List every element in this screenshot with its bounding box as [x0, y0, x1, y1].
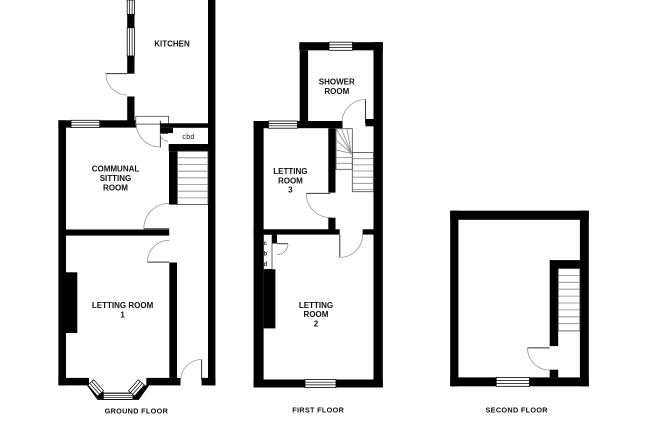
svg-text:FIRST FLOOR: FIRST FLOOR	[292, 406, 344, 415]
svg-text:ROOM: ROOM	[324, 87, 349, 96]
svg-text:LETTING: LETTING	[273, 167, 307, 176]
svg-text:ROOM: ROOM	[304, 310, 329, 319]
svg-text:d: d	[263, 262, 267, 268]
svg-text:SITTING: SITTING	[100, 174, 132, 183]
svg-text:GROUND FLOOR: GROUND FLOOR	[105, 406, 169, 415]
svg-text:SHOWER: SHOWER	[319, 78, 355, 87]
svg-text:cbd: cbd	[182, 134, 194, 141]
svg-text:b: b	[263, 252, 267, 258]
svg-text:ROOM: ROOM	[103, 184, 128, 193]
svg-text:LETTING ROOM: LETTING ROOM	[92, 301, 154, 310]
svg-text:LETTING: LETTING	[299, 301, 333, 310]
svg-text:KITCHEN: KITCHEN	[154, 39, 190, 48]
svg-text:1: 1	[120, 310, 125, 319]
svg-text:ROOM: ROOM	[278, 176, 303, 185]
svg-text:SECOND FLOOR: SECOND FLOOR	[486, 406, 549, 415]
svg-text:2: 2	[314, 320, 319, 329]
svg-text:3: 3	[288, 186, 293, 195]
svg-text:COMMUNAL: COMMUNAL	[92, 165, 140, 174]
